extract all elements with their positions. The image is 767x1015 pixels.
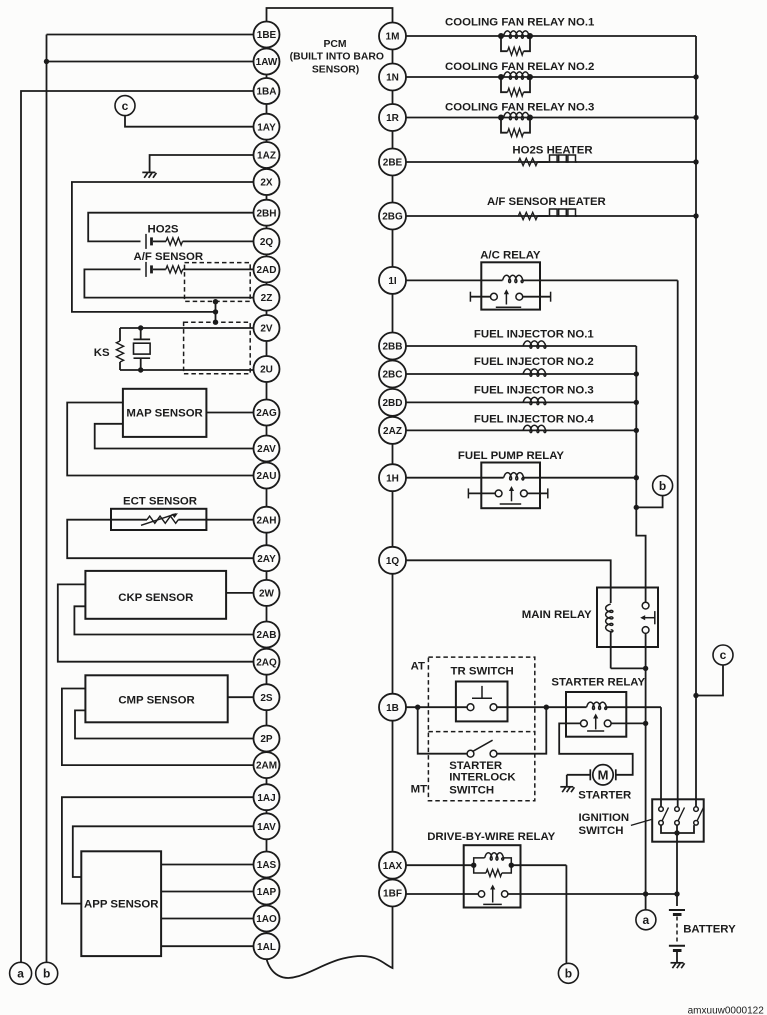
svg-text:1AZ: 1AZ: [257, 151, 276, 162]
svg-text:amxuuw0000122: amxuuw0000122: [688, 1006, 765, 1015]
svg-text:2AZ: 2AZ: [383, 426, 402, 437]
svg-text:KS: KS: [94, 347, 110, 359]
svg-text:1M: 1M: [386, 32, 400, 43]
svg-text:FUEL INJECTOR NO.3: FUEL INJECTOR NO.3: [474, 385, 594, 397]
svg-text:2U: 2U: [260, 365, 273, 376]
svg-text:FUEL PUMP RELAY: FUEL PUMP RELAY: [458, 450, 565, 462]
svg-text:1AO: 1AO: [256, 914, 277, 925]
svg-text:2AB: 2AB: [256, 630, 276, 641]
svg-text:HO2S HEATER: HO2S HEATER: [512, 145, 592, 157]
svg-text:2AQ: 2AQ: [256, 657, 277, 668]
svg-text:M: M: [598, 767, 609, 782]
svg-text:(BUILT INTO BARO: (BUILT INTO BARO: [290, 52, 384, 63]
svg-text:a: a: [643, 913, 650, 927]
svg-text:1AP: 1AP: [257, 887, 277, 898]
svg-text:A/F SENSOR: A/F SENSOR: [134, 251, 204, 263]
svg-text:1AL: 1AL: [257, 942, 276, 953]
svg-text:FUEL INJECTOR NO.2: FUEL INJECTOR NO.2: [474, 356, 594, 368]
svg-text:2BC: 2BC: [382, 370, 402, 381]
svg-text:1AV: 1AV: [257, 822, 276, 833]
svg-text:DRIVE-BY-WIRE RELAY: DRIVE-BY-WIRE RELAY: [427, 831, 555, 843]
svg-text:2BG: 2BG: [382, 212, 403, 223]
svg-text:2BB: 2BB: [382, 342, 402, 353]
svg-text:c: c: [122, 99, 129, 113]
svg-text:CKP SENSOR: CKP SENSOR: [118, 592, 193, 604]
svg-text:MAIN RELAY: MAIN RELAY: [522, 609, 592, 621]
svg-text:MT: MT: [411, 783, 427, 795]
svg-text:b: b: [43, 967, 50, 981]
svg-text:2AM: 2AM: [256, 761, 277, 772]
svg-text:SWITCH: SWITCH: [579, 825, 624, 837]
svg-text:a: a: [17, 967, 24, 981]
svg-text:2BD: 2BD: [382, 398, 402, 409]
svg-text:A/F SENSOR HEATER: A/F SENSOR HEATER: [487, 196, 606, 208]
svg-text:b: b: [659, 479, 666, 493]
svg-text:INTERLOCK: INTERLOCK: [449, 772, 516, 784]
svg-text:1Q: 1Q: [386, 556, 400, 567]
svg-text:1AS: 1AS: [257, 860, 277, 871]
svg-text:2AV: 2AV: [257, 444, 276, 455]
svg-text:1AW: 1AW: [256, 57, 278, 68]
svg-text:1AJ: 1AJ: [257, 793, 275, 804]
svg-text:1BE: 1BE: [257, 30, 277, 41]
svg-text:SWITCH: SWITCH: [449, 784, 494, 796]
svg-text:FUEL INJECTOR NO.4: FUEL INJECTOR NO.4: [474, 414, 595, 426]
svg-text:STARTER RELAY: STARTER RELAY: [551, 676, 645, 688]
svg-text:ECT SENSOR: ECT SENSOR: [123, 496, 197, 508]
svg-text:CMP SENSOR: CMP SENSOR: [118, 695, 194, 707]
svg-text:STARTER: STARTER: [449, 760, 502, 772]
svg-text:APP SENSOR: APP SENSOR: [84, 898, 158, 910]
svg-text:1BF: 1BF: [383, 889, 402, 900]
svg-text:MAP SENSOR: MAP SENSOR: [126, 408, 202, 420]
svg-text:BATTERY: BATTERY: [683, 924, 736, 936]
svg-text:1N: 1N: [386, 73, 399, 84]
svg-text:2X: 2X: [260, 178, 273, 189]
svg-text:2BH: 2BH: [256, 208, 276, 219]
svg-text:2S: 2S: [260, 693, 273, 704]
svg-text:b: b: [565, 967, 572, 981]
svg-text:2P: 2P: [260, 734, 273, 745]
svg-text:COOLING FAN RELAY NO.2: COOLING FAN RELAY NO.2: [445, 61, 594, 73]
svg-text:2AU: 2AU: [256, 471, 276, 482]
svg-text:1BA: 1BA: [256, 87, 276, 98]
svg-text:c: c: [720, 648, 727, 662]
svg-text:SENSOR): SENSOR): [312, 64, 359, 75]
svg-text:1I: 1I: [388, 276, 397, 287]
svg-text:2AY: 2AY: [257, 554, 276, 565]
svg-text:TR SWITCH: TR SWITCH: [451, 666, 514, 678]
svg-text:2AG: 2AG: [256, 408, 277, 419]
svg-text:HO2S: HO2S: [148, 224, 179, 236]
svg-text:1R: 1R: [386, 113, 400, 124]
svg-text:2AD: 2AD: [256, 265, 276, 276]
svg-text:1AX: 1AX: [383, 861, 403, 872]
svg-text:2V: 2V: [260, 324, 273, 335]
svg-text:2BE: 2BE: [383, 158, 403, 169]
svg-text:AT: AT: [411, 661, 425, 673]
svg-text:STARTER: STARTER: [578, 789, 631, 801]
svg-text:2Z: 2Z: [261, 293, 273, 304]
svg-text:1B: 1B: [386, 703, 399, 714]
svg-text:FUEL INJECTOR NO.1: FUEL INJECTOR NO.1: [474, 328, 595, 340]
svg-text:IGNITION: IGNITION: [579, 812, 630, 824]
svg-text:PCM: PCM: [323, 39, 346, 50]
svg-text:1H: 1H: [386, 473, 399, 484]
svg-text:2Q: 2Q: [260, 237, 274, 248]
svg-text:2W: 2W: [259, 589, 275, 600]
svg-text:COOLING FAN RELAY NO.1: COOLING FAN RELAY NO.1: [445, 17, 595, 29]
svg-text:A/C RELAY: A/C RELAY: [480, 250, 541, 262]
svg-text:COOLING FAN RELAY NO.3: COOLING FAN RELAY NO.3: [445, 102, 594, 114]
svg-text:2AH: 2AH: [256, 515, 276, 526]
svg-text:1AY: 1AY: [257, 122, 276, 133]
